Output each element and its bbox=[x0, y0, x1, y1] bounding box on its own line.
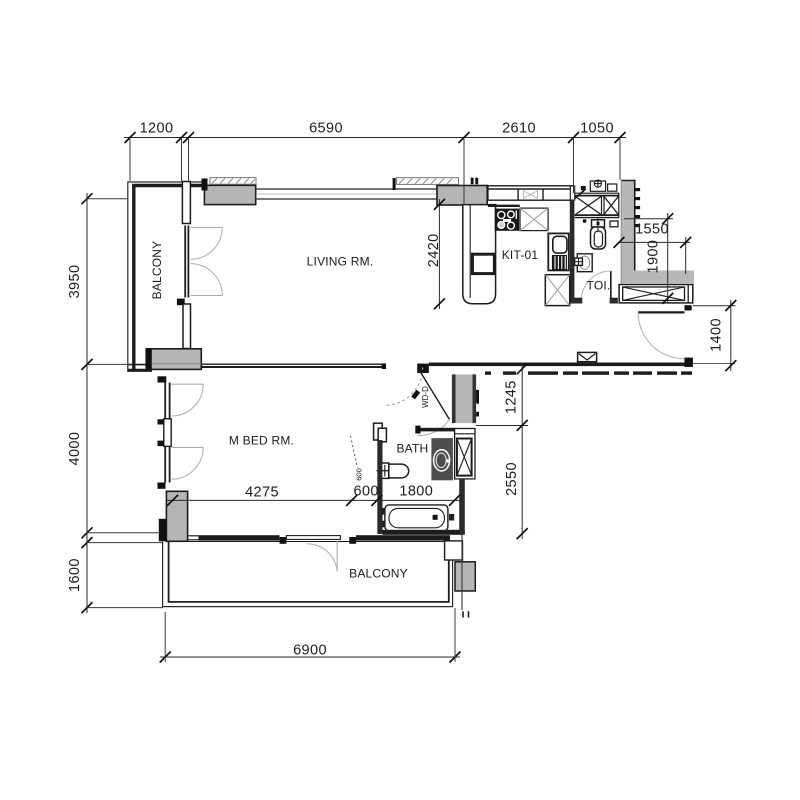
svg-text:BALCONY: BALCONY bbox=[150, 241, 164, 300]
svg-text:1550: 1550 bbox=[635, 221, 669, 237]
svg-text:1050: 1050 bbox=[580, 120, 614, 136]
svg-text:4275: 4275 bbox=[245, 485, 279, 501]
svg-text:M BED RM.: M BED RM. bbox=[229, 433, 294, 447]
svg-text:1600: 1600 bbox=[67, 558, 83, 592]
svg-text:1800: 1800 bbox=[399, 484, 433, 500]
svg-text:2420: 2420 bbox=[426, 233, 442, 267]
svg-text:1900: 1900 bbox=[646, 240, 662, 274]
svg-text:WD-D: WD-D bbox=[421, 386, 430, 408]
svg-text:600: 600 bbox=[355, 468, 364, 481]
svg-text:1200: 1200 bbox=[140, 120, 174, 136]
svg-text:2550: 2550 bbox=[504, 462, 520, 496]
svg-text:KIT-01: KIT-01 bbox=[502, 248, 539, 262]
svg-text:6590: 6590 bbox=[309, 120, 343, 136]
svg-text:1400: 1400 bbox=[709, 318, 725, 352]
svg-text:600: 600 bbox=[353, 484, 378, 500]
svg-text:TOI.: TOI. bbox=[587, 278, 611, 292]
svg-text:2610: 2610 bbox=[502, 120, 536, 136]
svg-text:4000: 4000 bbox=[67, 432, 83, 466]
svg-text:BATH: BATH bbox=[396, 442, 428, 456]
svg-text:LIVING RM.: LIVING RM. bbox=[307, 255, 374, 269]
svg-text:BALCONY: BALCONY bbox=[349, 566, 408, 580]
svg-text:1245: 1245 bbox=[503, 380, 519, 414]
svg-text:6900: 6900 bbox=[293, 642, 327, 658]
svg-text:3950: 3950 bbox=[67, 265, 83, 299]
